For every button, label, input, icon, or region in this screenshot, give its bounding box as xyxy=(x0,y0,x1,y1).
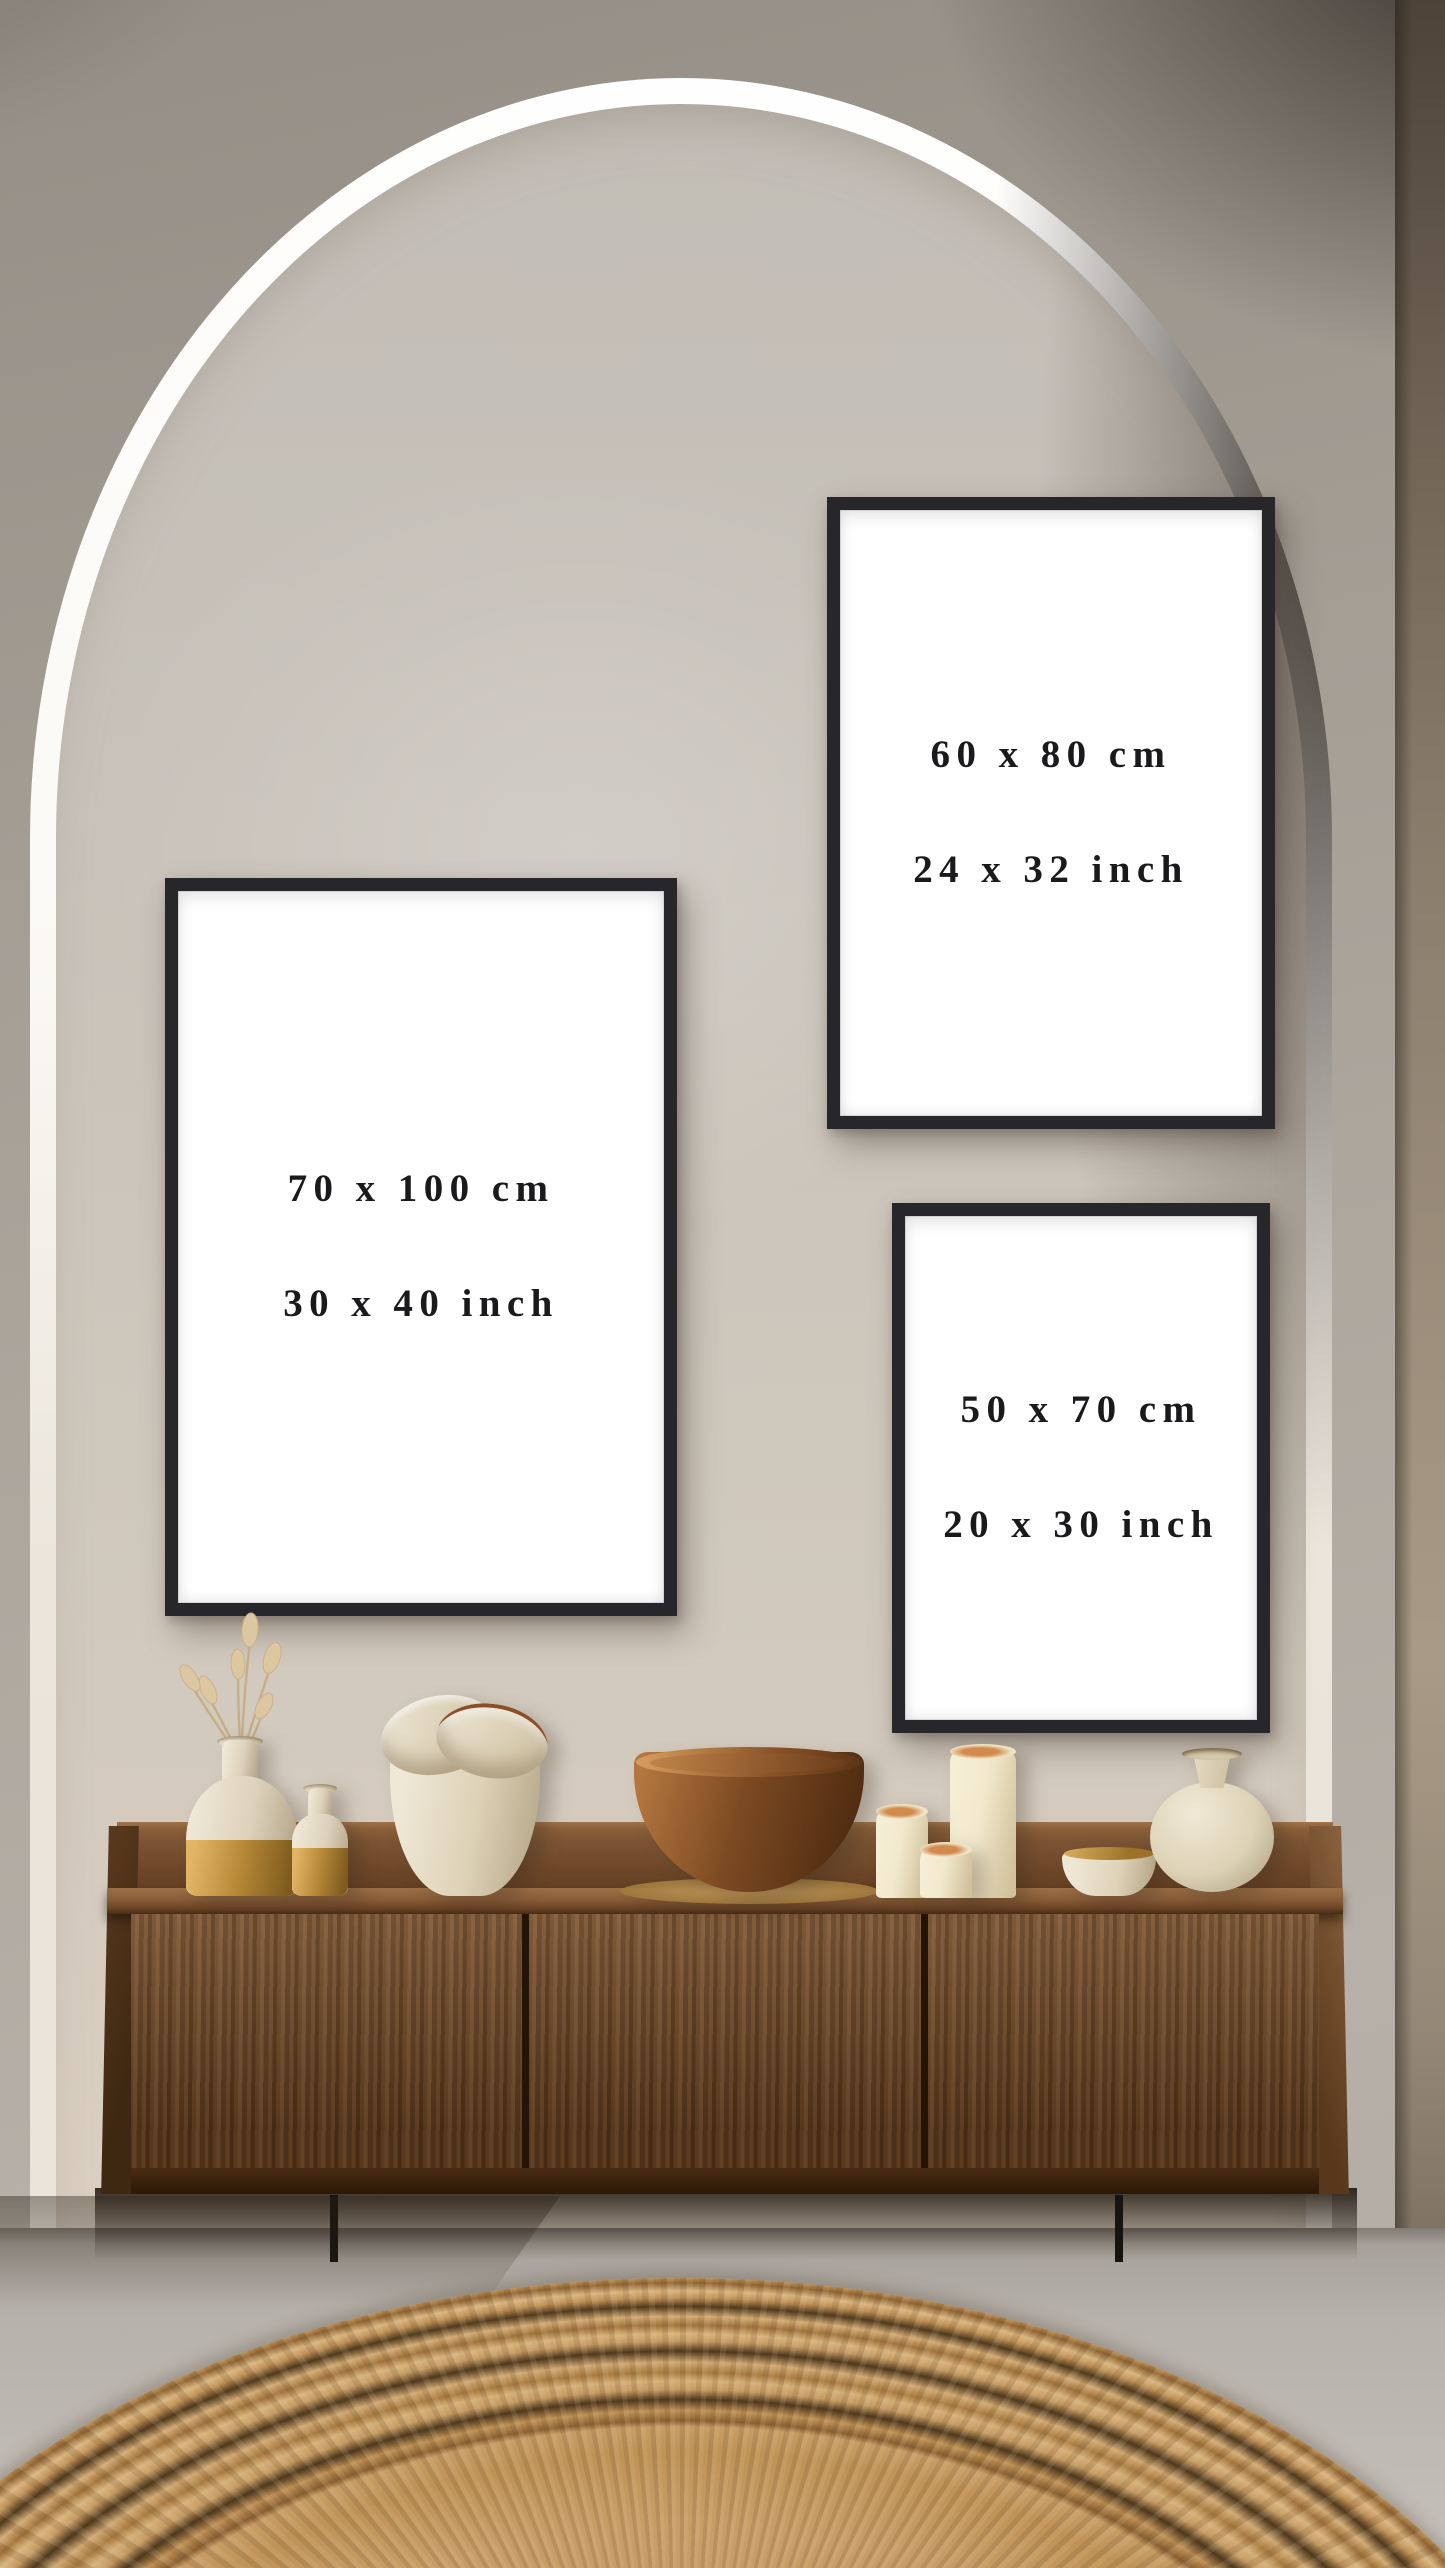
stacked-ceramic-bowls xyxy=(380,1690,550,1896)
vase-sphere-body xyxy=(1150,1782,1274,1892)
pillar-candle-front xyxy=(920,1848,972,1898)
poster-70x100: 70 x 100 cm 30 x 40 inch xyxy=(178,891,664,1603)
sideboard-leg-right xyxy=(1115,2195,1123,2262)
size-label-cm: 70 x 100 cm xyxy=(288,1166,555,1213)
poster-60x80: 60 x 80 cm 24 x 32 inch xyxy=(840,510,1262,1116)
vase-gold-band xyxy=(292,1848,348,1896)
sideboard-bottom-edge xyxy=(131,2168,1319,2194)
round-ceramic-vase xyxy=(1150,1752,1274,1892)
cabinet-diagonal-shadow xyxy=(0,2196,560,2306)
size-label-inch: 24 x 32 inch xyxy=(913,847,1189,894)
size-label-inch: 30 x 40 inch xyxy=(283,1281,559,1328)
candle-top xyxy=(920,1842,972,1857)
copper-bowl-opening xyxy=(650,1753,848,1773)
cup-gold-rim xyxy=(1064,1847,1154,1860)
poster-frame-60x80: 60 x 80 cm 24 x 32 inch xyxy=(827,497,1275,1129)
poster-50x70: 50 x 70 cm 20 x 30 inch xyxy=(905,1216,1257,1720)
vase-gold-band xyxy=(186,1840,298,1896)
poster-frame-70x100: 70 x 100 cm 30 x 40 inch xyxy=(165,878,677,1616)
sideboard-door-middle xyxy=(529,1914,920,2168)
candle-top xyxy=(876,1804,928,1819)
sideboard-door-left xyxy=(131,1914,522,2168)
bottle-vase-gold-band xyxy=(186,1740,298,1896)
small-vase-gold-band xyxy=(292,1788,348,1896)
size-label-cm: 60 x 80 cm xyxy=(931,732,1172,779)
sideboard-door-right xyxy=(928,1914,1319,2168)
candle-top xyxy=(950,1744,1016,1759)
poster-frame-50x70: 50 x 70 cm 20 x 30 inch xyxy=(892,1203,1270,1733)
sideboard-doors xyxy=(131,1914,1319,2168)
vase-lip xyxy=(1182,1748,1242,1760)
size-label-cm: 50 x 70 cm xyxy=(961,1387,1202,1434)
size-label-inch: 20 x 30 inch xyxy=(943,1502,1219,1549)
scene: 70 x 100 cm 30 x 40 inch 60 x 80 cm 24 x… xyxy=(0,0,1445,2568)
arch-right-reveal-shadow xyxy=(1395,0,1445,2244)
